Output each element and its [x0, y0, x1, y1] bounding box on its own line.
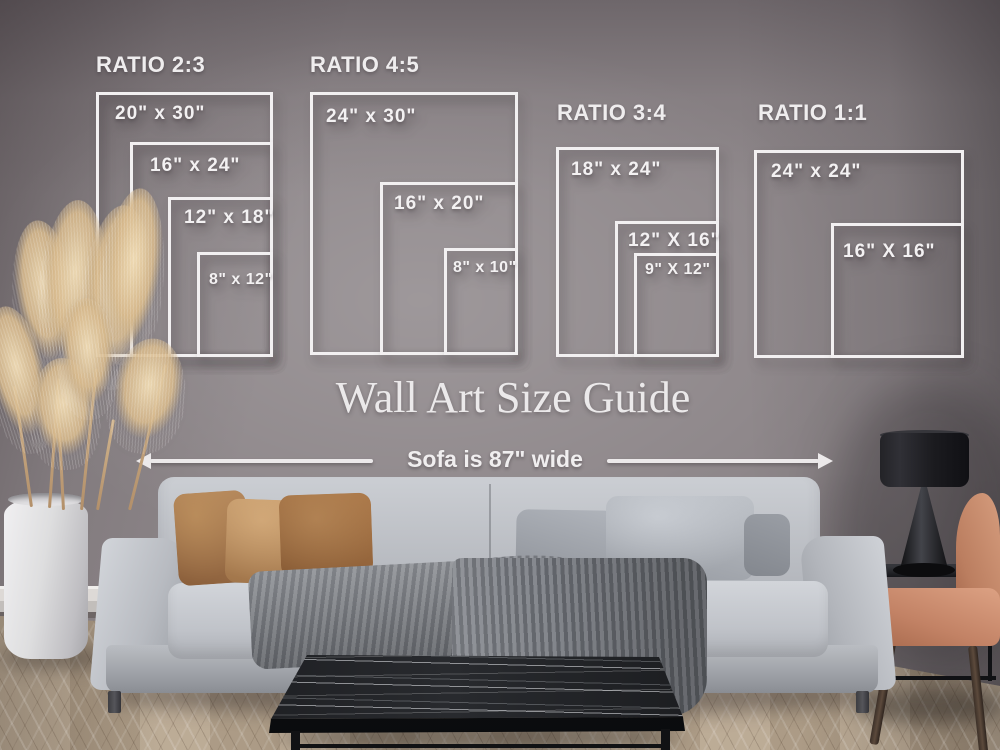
- sofa-width-arrow-left: [150, 459, 373, 463]
- size-label: 16" X 16": [843, 241, 936, 263]
- size-label: 9" X 12": [645, 261, 710, 279]
- size-label: 8" x 12": [209, 271, 273, 289]
- size-label: 24" x 30": [326, 106, 416, 128]
- size-rect: 8" x 12": [197, 252, 273, 357]
- size-label: 24" x 24": [771, 161, 861, 183]
- ratio-header: RATIO 2:3: [96, 52, 205, 78]
- guide-title: Wall Art Size Guide: [331, 372, 695, 423]
- arrow-left-icon: [136, 453, 151, 469]
- size-guide: RATIO 2:320" x 30"16" x 24"12" x 18"8" x…: [0, 0, 1000, 750]
- size-label: 16" x 24": [150, 155, 240, 177]
- size-rect: 9" X 12": [634, 253, 719, 357]
- wall-art-size-guide-image: RATIO 2:320" x 30"16" x 24"12" x 18"8" x…: [0, 0, 1000, 750]
- ratio-header: RATIO 1:1: [758, 100, 867, 126]
- arrow-right-icon: [818, 453, 833, 469]
- size-rect: 8" x 10": [444, 248, 518, 355]
- size-label: 18" x 24": [571, 159, 661, 181]
- ratio-header: RATIO 4:5: [310, 52, 419, 78]
- size-label: 12" X 16": [628, 230, 721, 252]
- sofa-width-arrow-right: [607, 459, 819, 463]
- size-label: 12" x 18": [184, 207, 274, 229]
- size-label: 20" x 30": [115, 103, 205, 125]
- size-label: 16" x 20": [394, 193, 484, 215]
- sofa-width-label: Sofa is 87" wide: [402, 446, 588, 473]
- size-rect: 16" X 16": [831, 223, 964, 358]
- ratio-header: RATIO 3:4: [557, 100, 666, 126]
- size-label: 8" x 10": [453, 259, 517, 277]
